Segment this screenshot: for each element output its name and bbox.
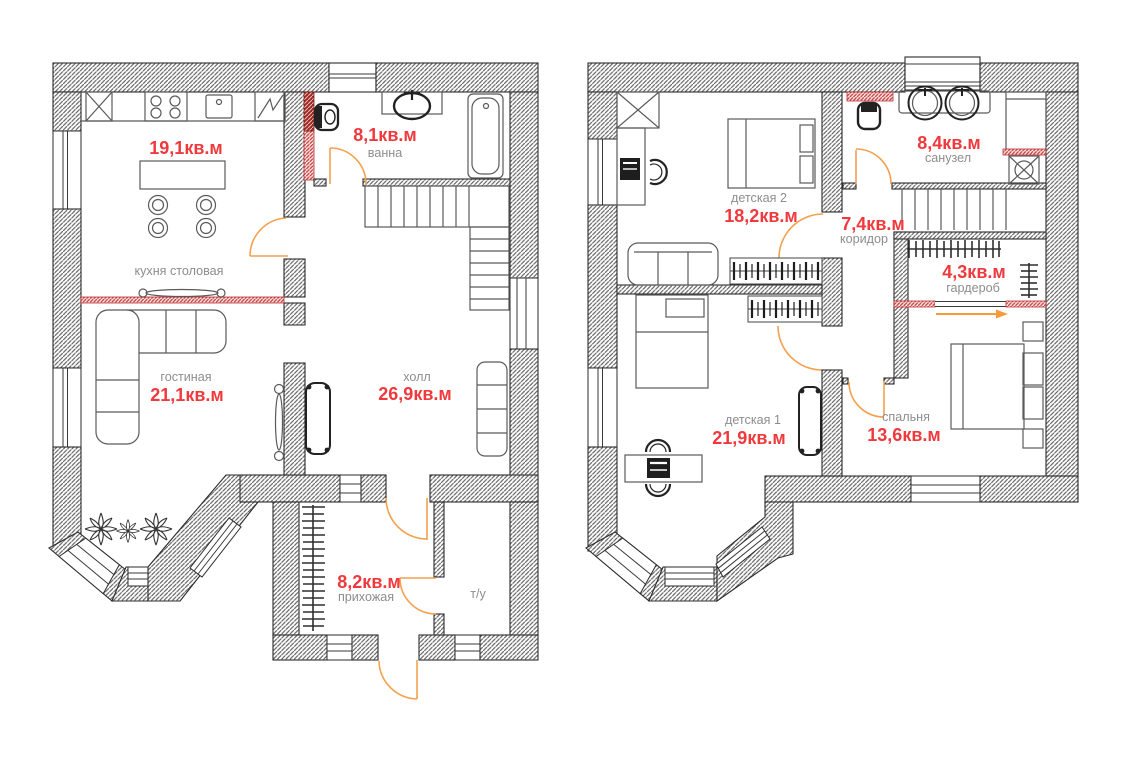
svg-text:19,1кв.м: 19,1кв.м <box>149 138 222 158</box>
svg-text:7,4кв.м: 7,4кв.м <box>841 214 904 234</box>
svg-text:8,4кв.м: 8,4кв.м <box>917 133 980 153</box>
svg-text:коридор: коридор <box>840 232 888 246</box>
svg-text:холл: холл <box>403 370 431 384</box>
svg-text:18,2кв.м: 18,2кв.м <box>724 206 797 226</box>
svg-text:21,1кв.м: 21,1кв.м <box>150 385 223 405</box>
svg-text:спальня: спальня <box>882 410 930 424</box>
svg-text:21,9кв.м: 21,9кв.м <box>712 428 785 448</box>
svg-text:4,3кв.м: 4,3кв.м <box>942 262 1005 282</box>
svg-text:детская 2: детская 2 <box>731 191 787 205</box>
svg-text:кухня столовая: кухня столовая <box>134 264 223 278</box>
svg-text:санузел: санузел <box>925 151 971 165</box>
svg-text:8,2кв.м: 8,2кв.м <box>337 572 400 592</box>
svg-text:гардероб: гардероб <box>946 281 1000 295</box>
svg-text:детская 1: детская 1 <box>725 413 781 427</box>
svg-text:ванна: ванна <box>368 146 402 160</box>
svg-text:8,1кв.м: 8,1кв.м <box>353 125 416 145</box>
svg-text:т/у: т/у <box>470 587 486 601</box>
svg-text:13,6кв.м: 13,6кв.м <box>867 425 940 445</box>
svg-text:прихожая: прихожая <box>338 590 394 604</box>
svg-text:гостиная: гостиная <box>160 370 211 384</box>
svg-text:26,9кв.м: 26,9кв.м <box>378 384 451 404</box>
